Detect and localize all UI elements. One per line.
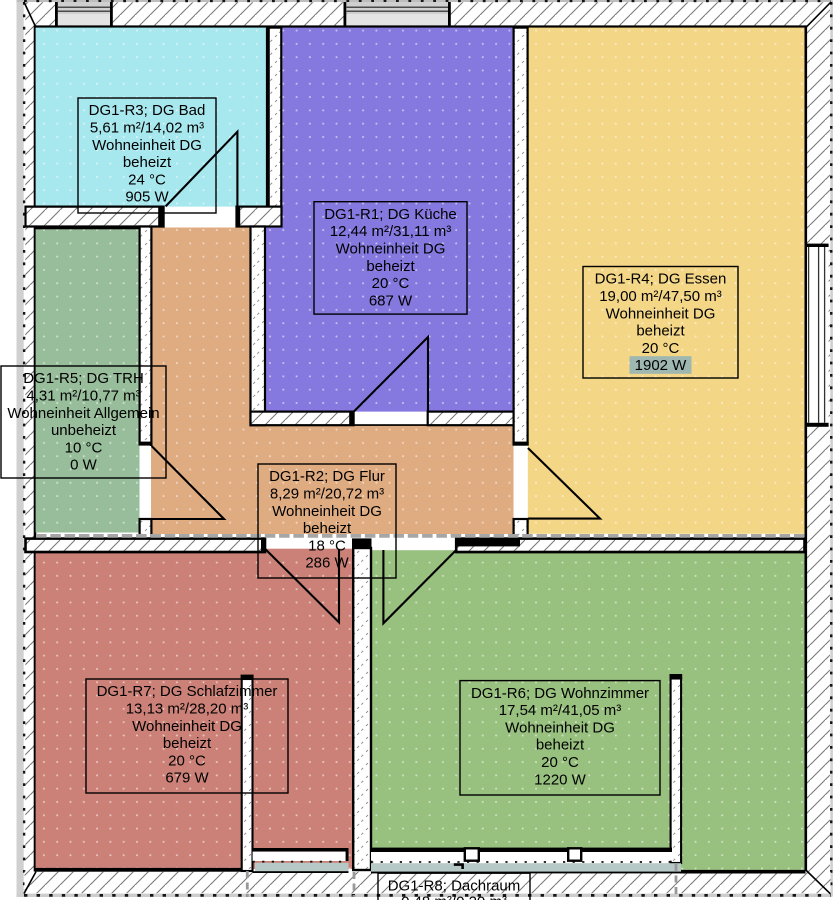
svg-text:Wohneinheit DG: Wohneinheit DG (336, 241, 446, 258)
svg-text:0 W: 0 W (70, 457, 98, 474)
svg-text:286 W: 286 W (305, 555, 349, 572)
svg-text:20 °C: 20 °C (642, 340, 680, 357)
svg-text:12,44 m²/31,11 m³: 12,44 m²/31,11 m³ (330, 223, 451, 240)
svg-text:DG1-R8; Dachraum: DG1-R8; Dachraum (388, 877, 521, 894)
svg-text:19,00 m²/47,50 m³: 19,00 m²/47,50 m³ (599, 288, 722, 305)
svg-text:24 °C: 24 °C (128, 171, 166, 188)
svg-text:beheizt: beheizt (366, 258, 415, 275)
svg-text:4,31 m²/10,77 m³: 4,31 m²/10,77 m³ (26, 388, 140, 405)
svg-text:DG1-R3; DG Bad: DG1-R3; DG Bad (89, 102, 206, 119)
svg-text:DG1-R4; DG Essen: DG1-R4; DG Essen (595, 271, 727, 288)
svg-text:DG1-R7; DG Schlafzimmer: DG1-R7; DG Schlafzimmer (97, 683, 278, 700)
svg-text:beheizt: beheizt (303, 520, 352, 537)
svg-text:DG1-R1; DG Küche: DG1-R1; DG Küche (324, 206, 457, 223)
svg-text:Wohneinheit DG: Wohneinheit DG (505, 719, 615, 736)
svg-text:DG1-R2; DG Flur: DG1-R2; DG Flur (269, 468, 385, 485)
svg-text:20 °C: 20 °C (372, 275, 410, 292)
svg-text:DG1-R6; DG Wohnzimmer: DG1-R6; DG Wohnzimmer (471, 685, 649, 702)
svg-text:905 W: 905 W (125, 189, 169, 206)
svg-text:5,61 m²/14,02 m³: 5,61 m²/14,02 m³ (90, 120, 204, 137)
svg-text:unbeheizt: unbeheizt (51, 422, 117, 439)
svg-text:Wohneinheit DG: Wohneinheit DG (272, 503, 382, 520)
svg-text:17,54 m²/41,05 m³: 17,54 m²/41,05 m³ (499, 702, 622, 719)
svg-text:DG1-R5; DG TRH: DG1-R5; DG TRH (23, 370, 144, 387)
svg-text:beheizt: beheizt (123, 154, 172, 171)
svg-text:20 °C: 20 °C (168, 752, 206, 769)
svg-text:18 °C: 18 °C (308, 537, 346, 554)
svg-text:Wohneinheit DG: Wohneinheit DG (606, 305, 716, 322)
svg-text:1220 W: 1220 W (534, 771, 587, 788)
svg-text:13,13 m²/28,20 m³: 13,13 m²/28,20 m³ (126, 701, 249, 718)
svg-text:Wohneinheit Allgemein: Wohneinheit Allgemein (7, 405, 159, 422)
svg-text:beheizt: beheizt (163, 735, 212, 752)
svg-text:687 W: 687 W (369, 292, 413, 309)
svg-text:20 °C: 20 °C (541, 754, 579, 771)
svg-text:679 W: 679 W (165, 770, 209, 787)
svg-text:0,48 m²/0,20 m³: 0,48 m²/0,20 m³ (401, 894, 507, 900)
svg-text:8,29 m²/20,72 m³: 8,29 m²/20,72 m³ (270, 486, 384, 503)
svg-text:beheizt: beheizt (536, 737, 585, 754)
svg-text:1902 W: 1902 W (635, 357, 688, 374)
svg-text:Wohneinheit DG: Wohneinheit DG (92, 137, 202, 154)
svg-text:Wohneinheit DG: Wohneinheit DG (132, 718, 242, 735)
svg-text:10 °C: 10 °C (65, 439, 103, 456)
svg-text:beheizt: beheizt (636, 323, 685, 340)
